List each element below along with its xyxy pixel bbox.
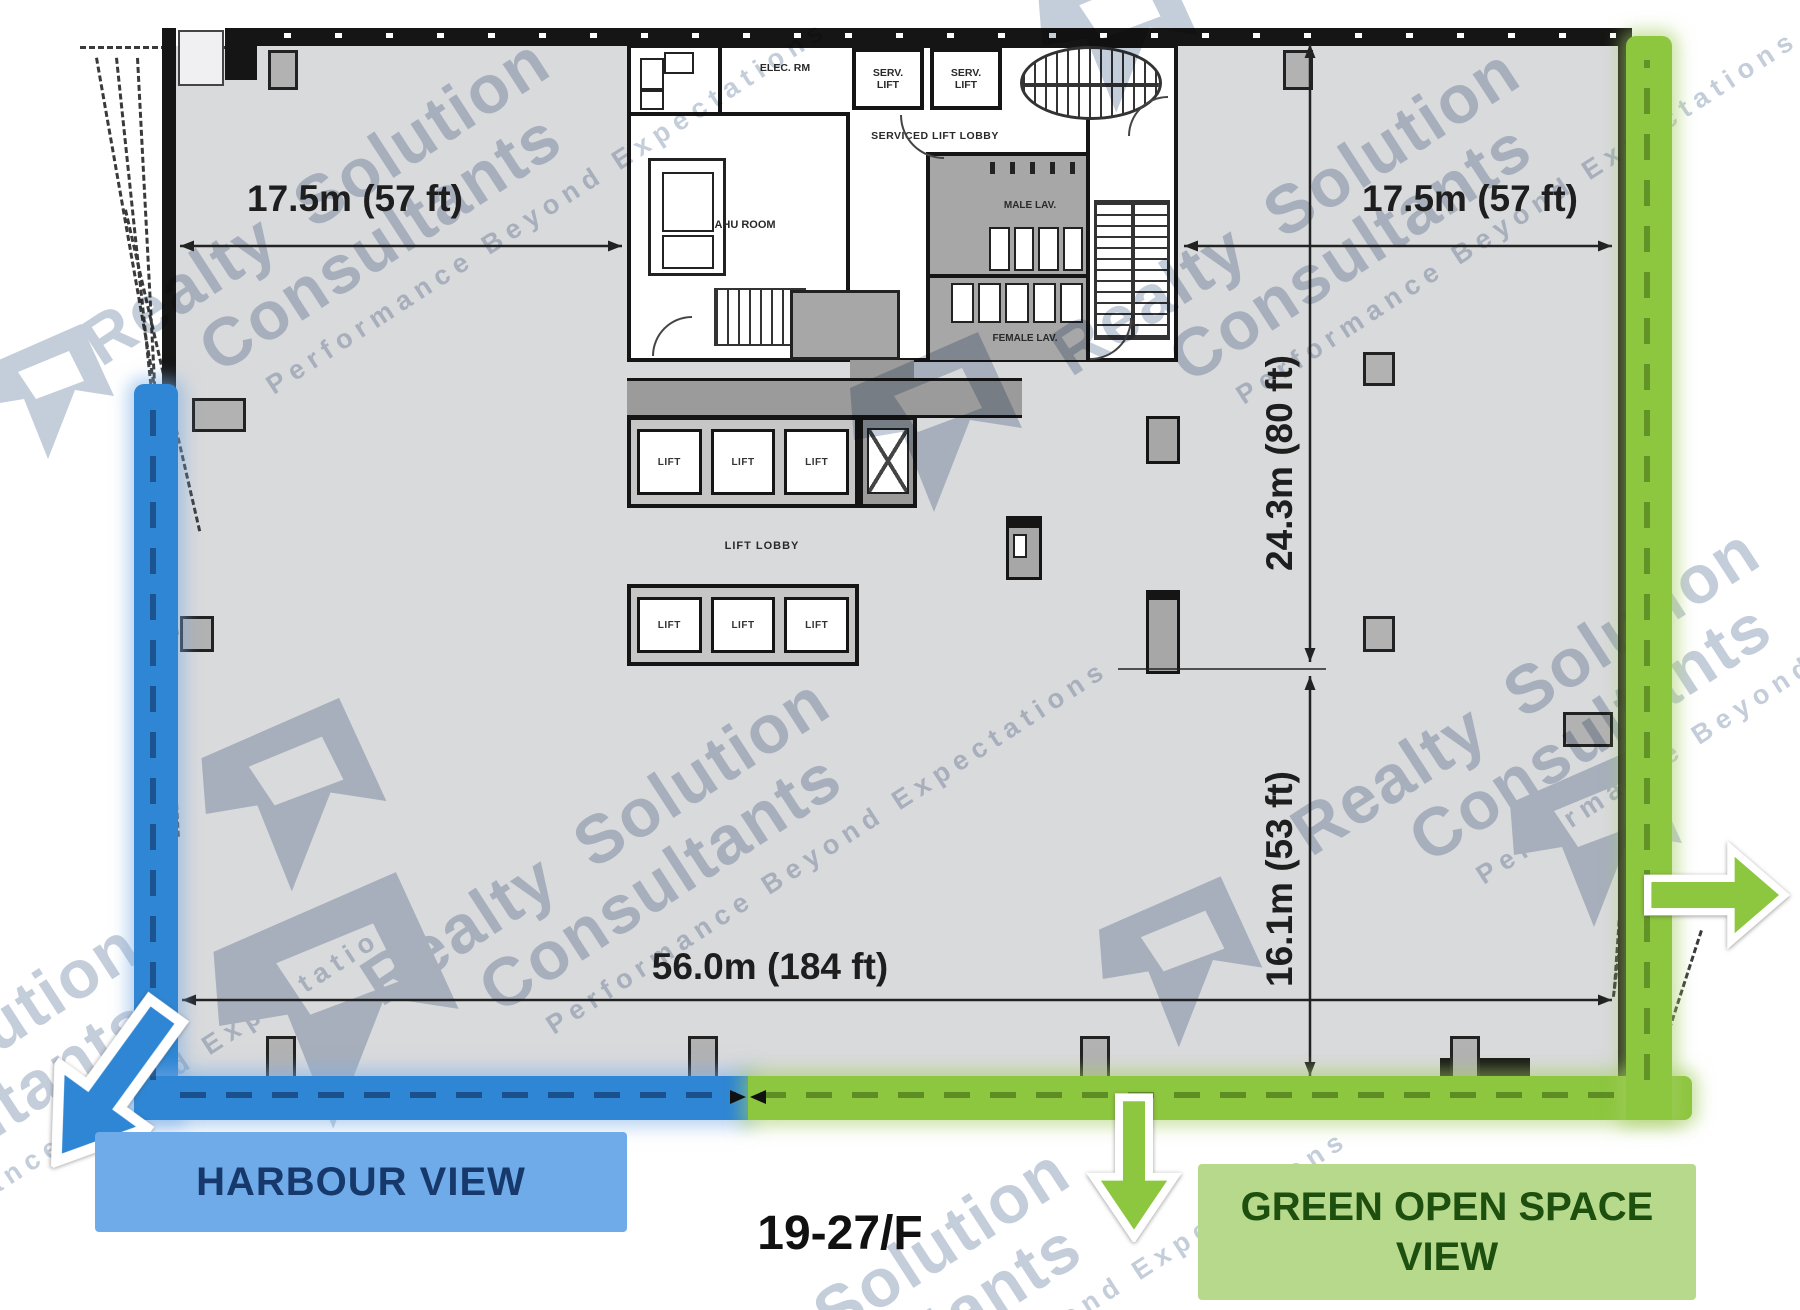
lift-shaft: LIFT xyxy=(637,429,702,495)
lift-shaft: LIFT xyxy=(711,597,776,653)
lift-shaft: LIFT xyxy=(711,429,776,495)
service-lift-2-label: SERV. LIFT xyxy=(943,67,989,91)
service-room xyxy=(790,290,900,360)
lift-shaft: LIFT xyxy=(784,429,849,495)
lift-shaft: LIFT xyxy=(784,597,849,653)
ahu-unit xyxy=(648,158,726,276)
lift-label: LIFT xyxy=(658,620,681,631)
lift-label: LIFT xyxy=(805,457,828,468)
column xyxy=(1363,352,1395,386)
wall-stub xyxy=(1146,590,1180,674)
wall-stub xyxy=(1146,416,1180,464)
dim-lower-depth: 16.1m (53 ft) xyxy=(1259,719,1301,1039)
pantry-fixture xyxy=(640,90,664,110)
column xyxy=(1283,50,1313,90)
lift-label: LIFT xyxy=(731,620,754,631)
column xyxy=(1563,712,1613,747)
urinal-row xyxy=(990,162,1084,174)
harbour-view-text: HARBOUR VIEW xyxy=(196,1160,526,1205)
column xyxy=(268,50,298,90)
floors-label: 19-27/F xyxy=(700,1198,980,1268)
green-view-band-bottom xyxy=(748,1076,1692,1120)
harbour-view-band-bottom xyxy=(134,1076,748,1120)
green-view-arrow-right xyxy=(1644,838,1792,952)
band-wall-ticks xyxy=(150,400,156,1080)
column xyxy=(1363,616,1395,652)
column xyxy=(192,398,246,432)
pantry-fixture xyxy=(664,52,694,74)
core-partition xyxy=(926,274,1090,278)
dim-left-width: 17.5m (57 ft) xyxy=(205,178,505,220)
band-wall-ticks xyxy=(180,1092,736,1098)
ahu-room-label: AHU ROOM xyxy=(700,219,790,232)
female-lav-label: FEMALE LAV. xyxy=(975,333,1075,345)
floors-text: 19-27/F xyxy=(757,1206,922,1261)
lift-lobby-label: LIFT LOBBY xyxy=(712,540,812,553)
lift-label: LIFT xyxy=(658,457,681,468)
female-lav-stalls xyxy=(948,280,1086,326)
band-wall-ticks xyxy=(760,1092,1620,1098)
core-partition xyxy=(627,112,850,116)
green-open-space-text-line1: GREEN OPEN SPACE xyxy=(1241,1182,1654,1232)
green-view-arrow-down xyxy=(1086,1092,1182,1242)
harbour-view-label: HARBOUR VIEW xyxy=(95,1132,627,1232)
floor-plan-canvas: ELEC. RM SERV. LIFT SERV. LIFT SERVICED … xyxy=(0,0,1800,1310)
service-lift-2: SERV. LIFT xyxy=(930,48,1002,110)
green-open-space-label: GREEN OPEN SPACE VIEW xyxy=(1198,1164,1696,1300)
dim-right-width: 17.5m (57 ft) xyxy=(1320,178,1620,220)
core-partition xyxy=(718,46,722,116)
elec-room-label: ELEC. RM xyxy=(756,62,814,74)
wall-corner-block xyxy=(225,28,257,80)
dim-total-width: 56.0m (184 ft) xyxy=(620,946,920,988)
lift-bank-1: LIFT LIFT LIFT xyxy=(627,416,859,508)
small-shaft xyxy=(1006,516,1042,580)
refuge-balcony xyxy=(178,30,224,86)
lift-label: LIFT xyxy=(731,457,754,468)
male-lav-label: MALE LAV. xyxy=(985,200,1075,212)
corridor-bridge xyxy=(850,360,914,380)
service-lift-1-label: SERV. LIFT xyxy=(865,67,911,91)
band-junction-arrows xyxy=(722,1086,774,1108)
corridor xyxy=(627,378,1022,418)
lift-bank-2: LIFT LIFT LIFT xyxy=(627,584,859,666)
lift-label: LIFT xyxy=(805,620,828,631)
vent-shaft xyxy=(859,416,917,508)
watermark-flag-logo xyxy=(0,315,120,465)
column xyxy=(180,616,214,652)
pantry-fixture xyxy=(640,58,664,90)
green-open-space-text-line2: VIEW xyxy=(1396,1232,1498,1282)
dim-core-depth: 24.3m (80 ft) xyxy=(1259,303,1301,623)
wall-top-window-ticks xyxy=(240,33,1616,38)
lift-shaft: LIFT xyxy=(637,597,702,653)
male-lav-stalls xyxy=(986,224,1086,274)
service-lift-1: SERV. LIFT xyxy=(852,48,924,110)
